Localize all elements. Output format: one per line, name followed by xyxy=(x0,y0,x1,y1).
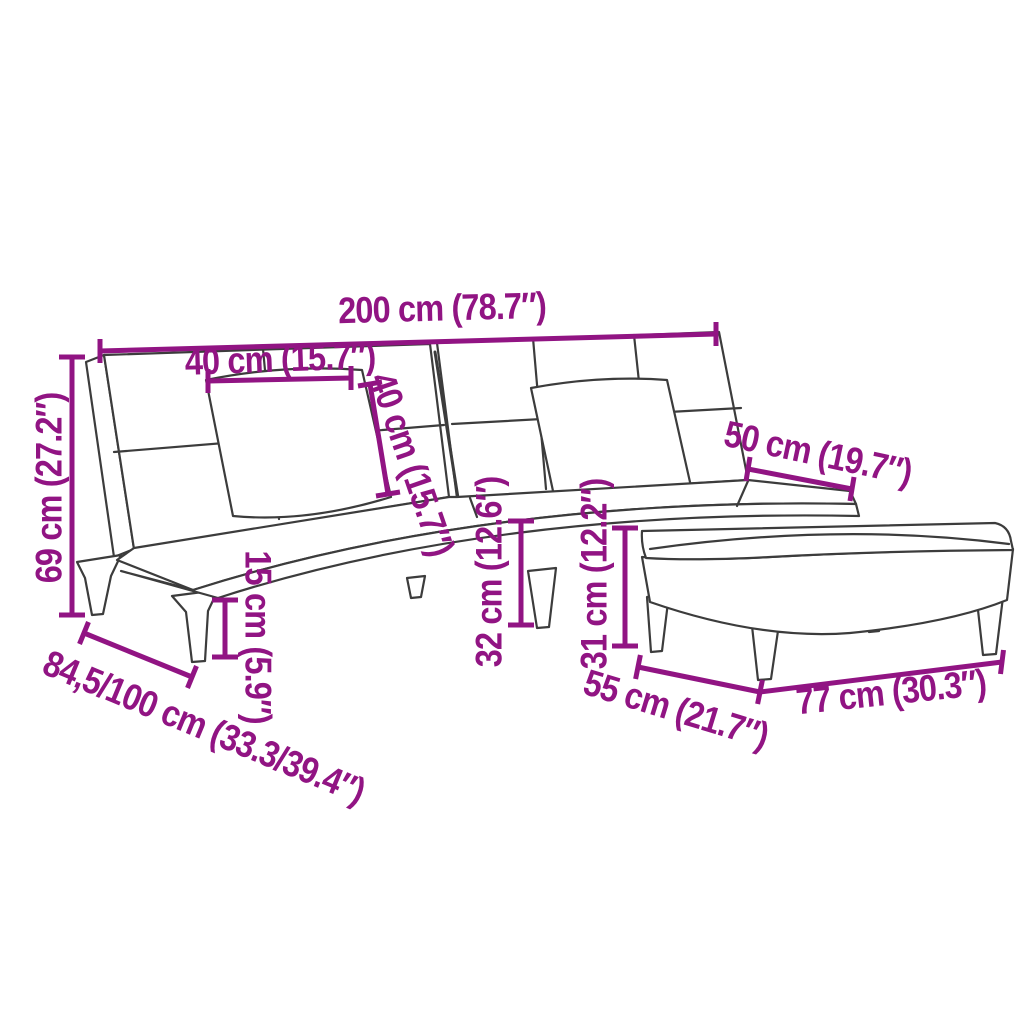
sofa-leg-front-right xyxy=(528,568,556,628)
cushion-left xyxy=(206,368,391,517)
dim-label-footstool-height: 31 cm (12.2″) xyxy=(576,479,613,670)
dim-label-leg-height: 15 cm (5.9″) xyxy=(240,550,277,723)
sofa-line-drawing xyxy=(0,0,1024,1024)
dim-label-cushion-width: 40 cm (15.7″) xyxy=(184,337,376,381)
sofa-leg-middle xyxy=(407,576,425,598)
dimension-diagram: 200 cm (78.7″) 40 cm (15.7″) 40 cm (15.7… xyxy=(0,0,1024,1024)
sofa-leg-rear-left xyxy=(77,555,121,615)
dimension-line-leg-height xyxy=(212,600,238,657)
dim-label-total-height: 69 cm (27.2″) xyxy=(31,393,68,584)
sofa-leg-front-left xyxy=(172,590,218,662)
dim-label-seat-height: 32 cm (12.6″) xyxy=(471,477,508,668)
sofa xyxy=(77,332,1013,680)
dimension-line-footstool-height xyxy=(612,528,638,646)
dim-label-total-width: 200 cm (78.7″) xyxy=(338,287,547,329)
footstool xyxy=(642,523,1013,634)
